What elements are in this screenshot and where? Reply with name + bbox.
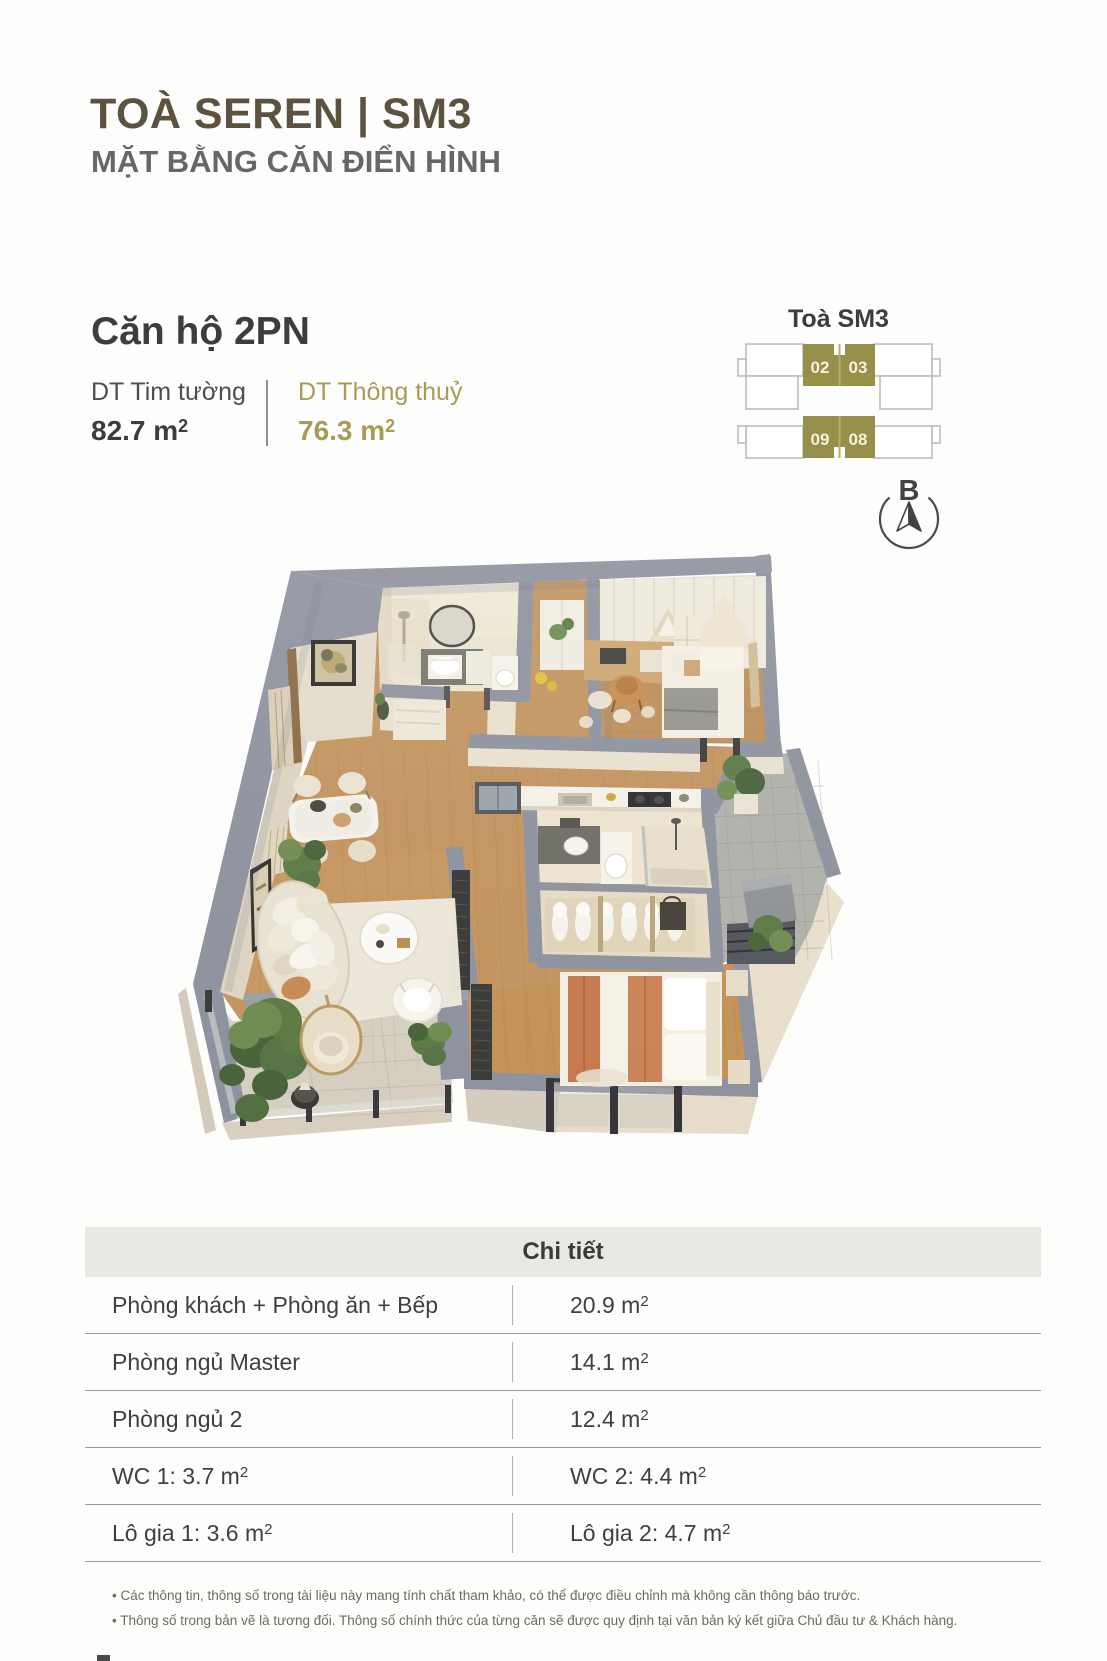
svg-text:02: 02 xyxy=(811,358,830,377)
svg-text:03: 03 xyxy=(849,358,868,377)
svg-text:08: 08 xyxy=(849,430,868,449)
svg-text:09: 09 xyxy=(811,430,830,449)
